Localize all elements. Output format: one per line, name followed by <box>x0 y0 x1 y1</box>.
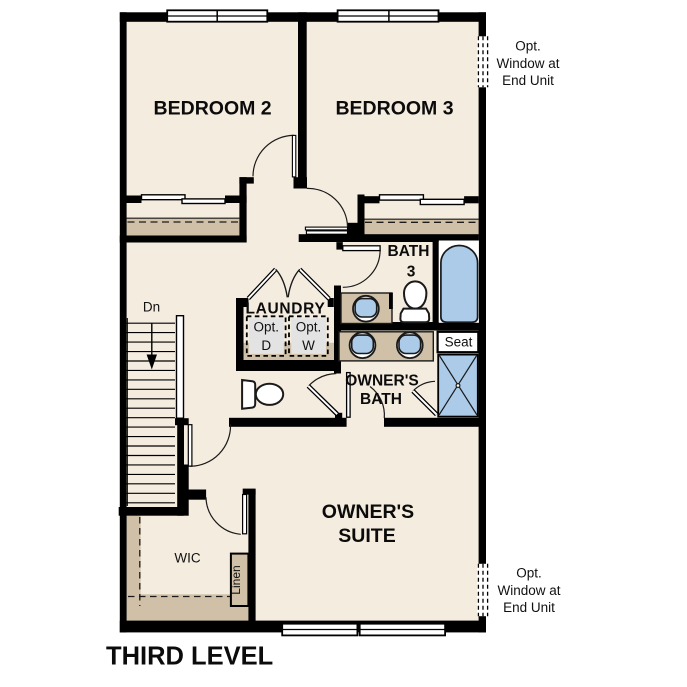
svg-text:Seat: Seat <box>445 335 473 350</box>
svg-text:Dn: Dn <box>143 300 160 315</box>
svg-text:D: D <box>261 338 271 353</box>
svg-text:End Unit: End Unit <box>503 600 555 615</box>
svg-text:WIC: WIC <box>174 551 200 566</box>
svg-text:THIRD LEVEL: THIRD LEVEL <box>106 643 273 671</box>
svg-text:Opt.: Opt. <box>515 39 541 54</box>
svg-text:BATH: BATH <box>360 391 402 408</box>
svg-text:OWNER'S: OWNER'S <box>322 501 414 523</box>
svg-text:Opt.: Opt. <box>516 566 542 581</box>
svg-text:Window at: Window at <box>497 583 560 598</box>
svg-text:W: W <box>302 338 315 353</box>
svg-text:3: 3 <box>407 264 416 281</box>
svg-text:OWNER'S: OWNER'S <box>345 373 418 390</box>
svg-text:LAUNDRY: LAUNDRY <box>245 301 325 318</box>
svg-text:BEDROOM 3: BEDROOM 3 <box>335 98 453 120</box>
svg-text:Opt.: Opt. <box>296 320 322 335</box>
svg-text:BEDROOM 2: BEDROOM 2 <box>154 98 272 120</box>
svg-text:Linen: Linen <box>229 565 243 594</box>
svg-text:Opt.: Opt. <box>254 320 280 335</box>
svg-text:BATH: BATH <box>388 243 430 260</box>
svg-text:Window at: Window at <box>496 56 559 71</box>
svg-text:SUITE: SUITE <box>338 525 395 547</box>
svg-text:End Unit: End Unit <box>502 73 554 88</box>
